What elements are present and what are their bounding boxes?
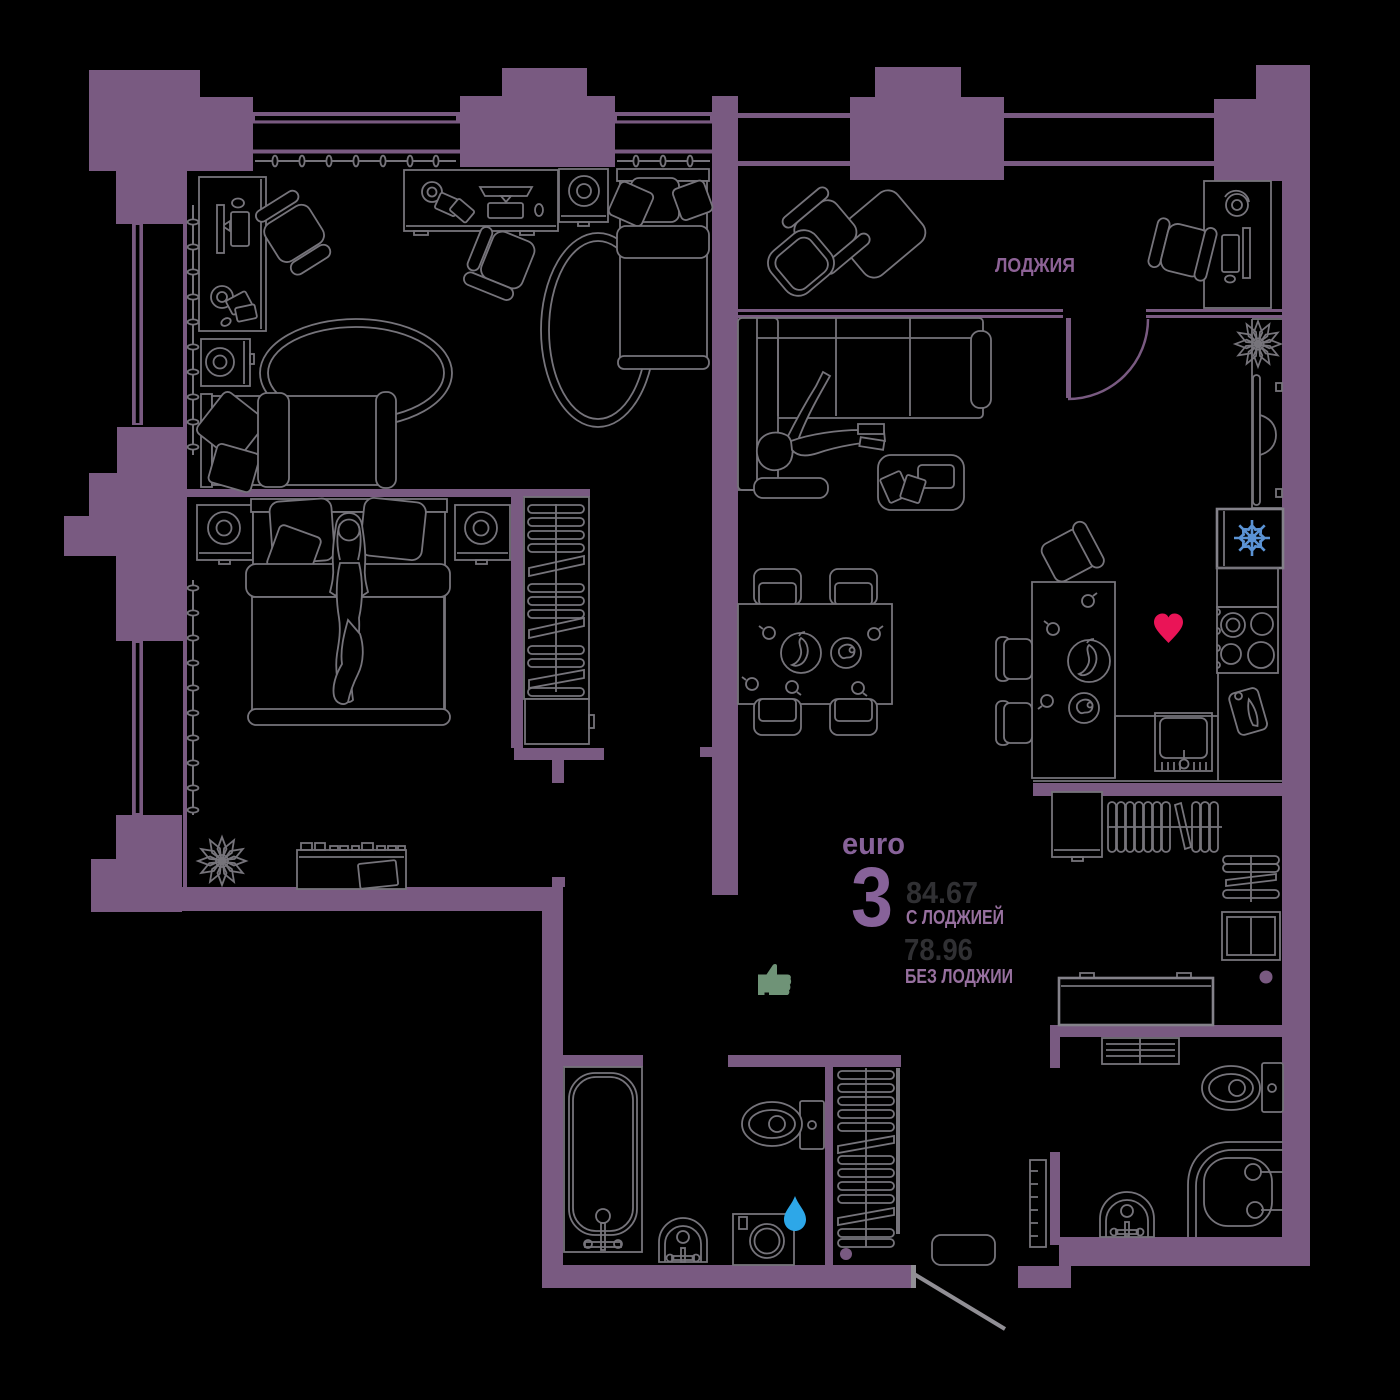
svg-text:С ЛОДЖИЕЙ: С ЛОДЖИЕЙ <box>906 905 1004 929</box>
svg-text:78.96: 78.96 <box>904 932 973 967</box>
svg-text:3: 3 <box>851 850 893 944</box>
svg-text:ЛОДЖИЯ: ЛОДЖИЯ <box>995 255 1075 277</box>
svg-text:84.67: 84.67 <box>906 875 978 910</box>
svg-text:БЕЗ ЛОДЖИИ: БЕЗ ЛОДЖИИ <box>905 965 1013 988</box>
